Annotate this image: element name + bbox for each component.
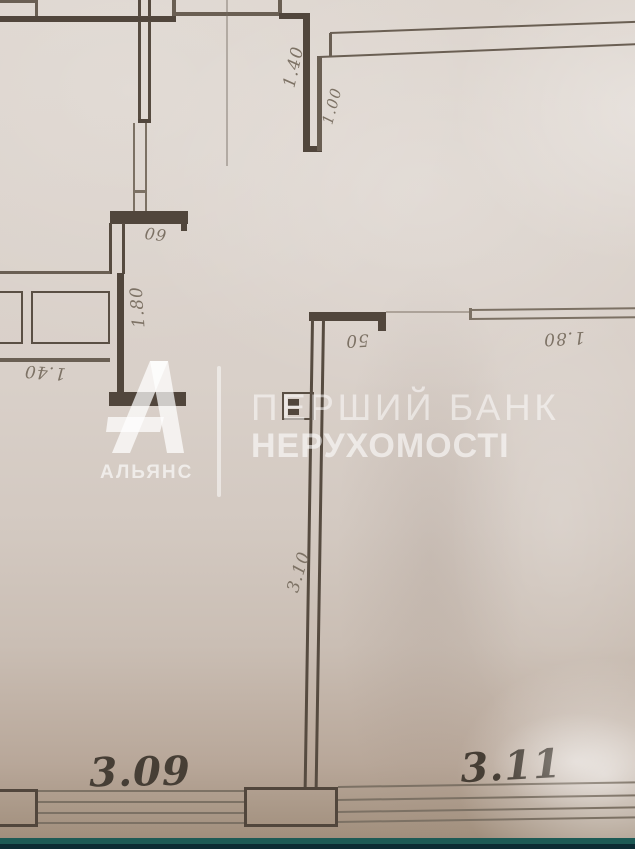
- niche-pier-left: [0, 291, 23, 344]
- dimension-label-60-closet: 60: [143, 223, 168, 245]
- wall-stub-up-1: [172, 0, 176, 16]
- wall-left-column-above: [138, 0, 151, 17]
- wall-top-edge-stub: [0, 0, 38, 3]
- wall-top-right-connector: [329, 33, 332, 57]
- alliance-brand-name: АЛЬЯНС: [100, 462, 192, 484]
- window-sill-line-right-3: [338, 806, 635, 813]
- photo-dark-strip: [0, 844, 635, 849]
- room-label-3-11: 3.11: [459, 740, 563, 792]
- door-frame-tick: [133, 190, 147, 193]
- vent-shaft: [282, 392, 314, 420]
- opening-wall-lower-line: [470, 316, 635, 320]
- pier-left: [0, 789, 38, 827]
- wall-foot-bar: [110, 211, 188, 224]
- wall-stub-up-2: [278, 0, 282, 13]
- niche-pier-right: [31, 291, 110, 344]
- window-sill-line-left-3: [38, 812, 244, 814]
- window-sill-line-left-2: [38, 801, 244, 803]
- paper-crease-line: [226, 0, 228, 166]
- room-label-3-09: 3.09: [89, 748, 191, 797]
- wall-corridor-bottom-bar: [109, 392, 186, 406]
- wall-vertical-entry-right: [317, 56, 322, 151]
- door-opening-lintel-line: [386, 311, 470, 313]
- wall-top-right-upper-line: [330, 21, 635, 35]
- opening-wall-end-tick: [469, 308, 472, 320]
- niche-bottom-line: [0, 358, 110, 362]
- vent-shaft-hatch-1: [288, 399, 299, 406]
- wall-top-middle-horizontal: [176, 12, 282, 16]
- window-sill-line-right-2: [338, 794, 635, 801]
- wall-partition-stub-end-tick: [378, 312, 386, 331]
- watermark-title-line2: НЕРУХОМОСТІ: [251, 427, 510, 466]
- wall-left-column-upper: [138, 21, 151, 123]
- dimension-label-50-partition: 50: [345, 329, 370, 351]
- wall-closet-left: [109, 223, 125, 274]
- watermark-divider: [217, 366, 221, 497]
- vent-shaft-hatch-2: [288, 409, 299, 415]
- window-sill-line-left-4: [38, 822, 244, 824]
- door-opening-frame: [133, 123, 147, 212]
- window-sill-line-right-4: [338, 816, 635, 823]
- dimension-label-1-40-niche: 1.40: [23, 361, 66, 384]
- dimension-label-1-00-top: 1.00: [318, 86, 345, 127]
- wall-foot-bar-hook: [181, 223, 187, 231]
- niche-top-line: [0, 271, 110, 274]
- dimension-label-1-80-corridor: 1.80: [127, 285, 150, 328]
- wall-corridor-left: [117, 273, 124, 394]
- opening-wall-upper-line: [470, 307, 635, 311]
- pier-center: [244, 787, 338, 827]
- wall-top-right-lower-line: [319, 43, 635, 58]
- dimension-label-1-80-opening: 1.80: [543, 327, 586, 349]
- wall-vertical-entry-left: [303, 13, 310, 151]
- floor-plan-photo: 1.40 1.00 60 1.80 1.40 50 1.80 3.10 3.09…: [0, 0, 635, 849]
